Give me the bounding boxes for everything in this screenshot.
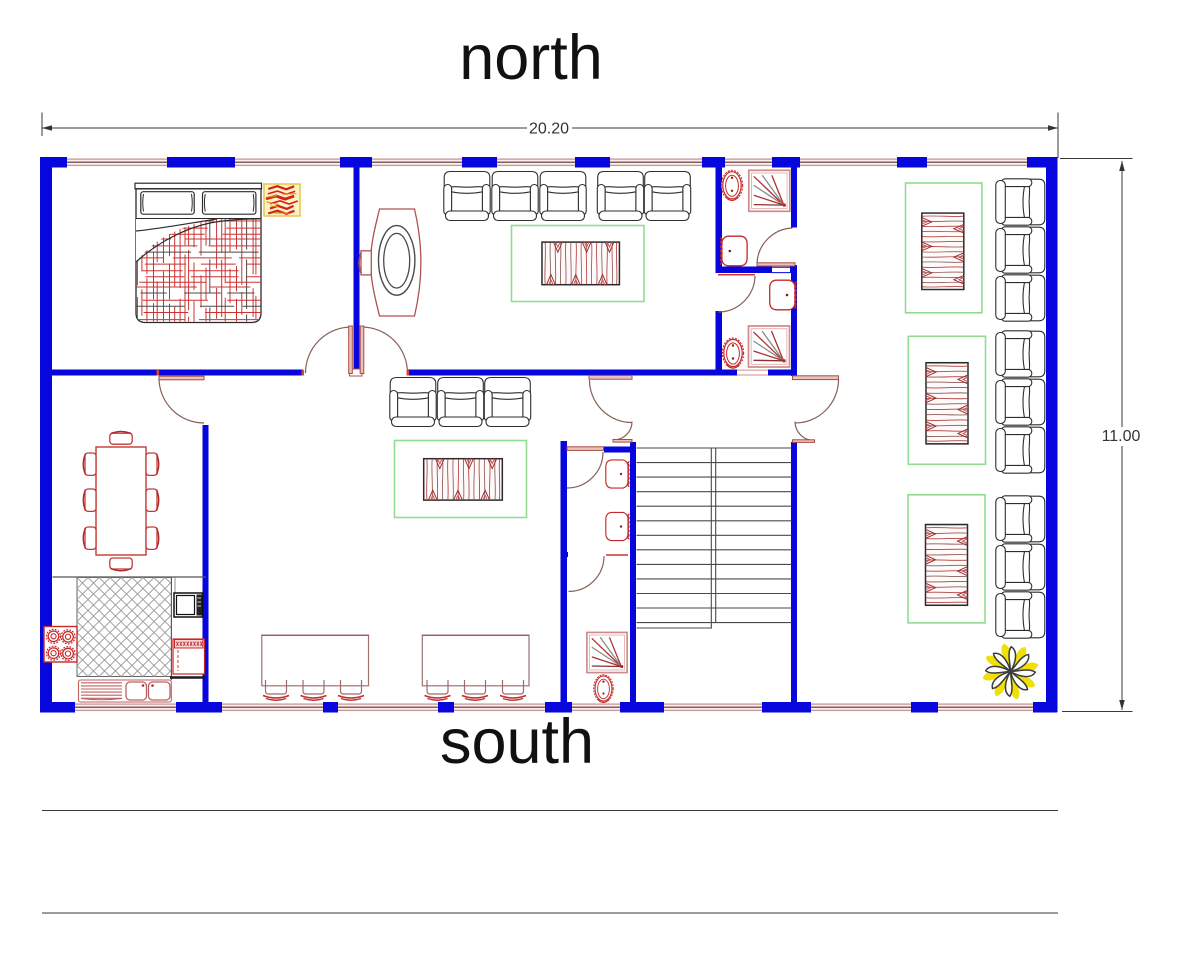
svg-text:20.20: 20.20 <box>529 121 569 138</box>
svg-text:11.00: 11.00 <box>1102 428 1141 445</box>
svg-text:north: north <box>459 23 603 93</box>
svg-text:south: south <box>440 707 594 777</box>
